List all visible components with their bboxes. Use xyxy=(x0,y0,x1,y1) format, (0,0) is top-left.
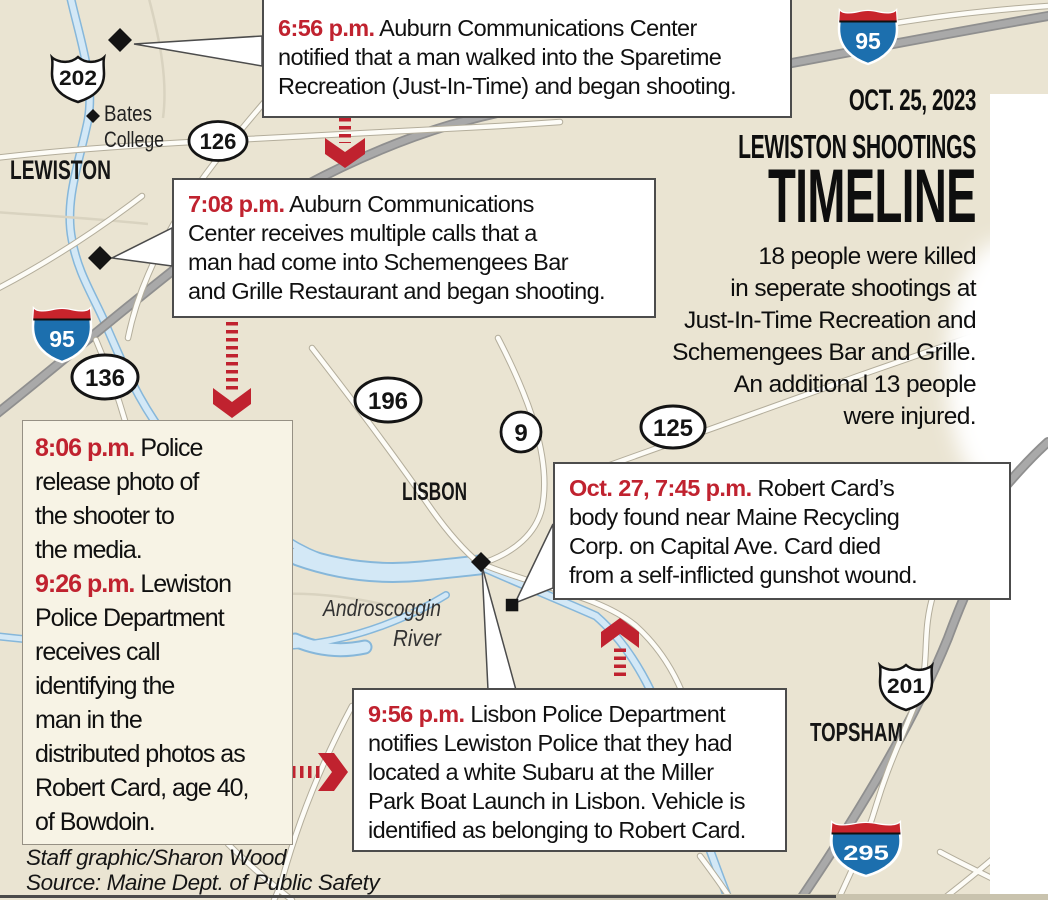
bates-college-label-2: College xyxy=(104,127,164,152)
rt-126-shield: 126 xyxy=(189,122,247,161)
svg-text:202: 202 xyxy=(59,67,97,90)
summary-line: Schemengees Bar and Grille. xyxy=(596,337,976,369)
event-time: 9:26 p.m. xyxy=(35,570,134,598)
lewiston-shootings-timeline-graphic: 202 201 126 136 196 9 xyxy=(0,0,1048,900)
summary-line: were injured. xyxy=(596,401,976,433)
callout-708pm: 7:08 p.m. Auburn Communications Center r… xyxy=(172,178,656,318)
summary-line: An additional 13 people xyxy=(596,369,976,401)
river-label-1: Androscoggin xyxy=(321,595,441,621)
callout-806pm-926pm: 8:06 p.m. Police release photo of the sh… xyxy=(22,420,293,845)
summary-line: 18 people were killed xyxy=(596,241,976,273)
marker-body-found-square xyxy=(506,599,519,612)
callout-956pm: 9:56 p.m. Lisbon Police Department notif… xyxy=(352,688,787,852)
city-label-lewiston: LEWISTON xyxy=(10,155,111,185)
svg-text:295: 295 xyxy=(843,841,889,865)
event-time: 7:08 p.m. xyxy=(188,191,284,217)
rt-136-shield: 136 xyxy=(72,355,138,399)
svg-text:136: 136 xyxy=(85,365,125,392)
svg-text:126: 126 xyxy=(200,129,237,154)
svg-text:95: 95 xyxy=(49,326,75,352)
credit-source: Source: Maine Dept. of Public Safety xyxy=(26,870,379,895)
event-time: 9:56 p.m. xyxy=(368,701,464,727)
credit-byline: Staff graphic/Sharon Wood xyxy=(26,845,379,870)
summary-line: in seperate shootings at xyxy=(596,273,976,305)
title-summary: 18 people were killedin seperate shootin… xyxy=(596,241,976,433)
svg-text:95: 95 xyxy=(855,28,881,54)
event-time: 8:06 p.m. xyxy=(35,434,134,462)
city-label-lisbon: LISBON xyxy=(402,478,467,506)
credits: Staff graphic/Sharon Wood Source: Maine … xyxy=(26,845,379,895)
rt-196-shield: 196 xyxy=(355,378,421,422)
summary-line: Just-In-Time Recreation and xyxy=(596,305,976,337)
callout-oct27-745pm: Oct. 27, 7:45 p.m. Robert Card’s body fo… xyxy=(553,462,1011,600)
city-label-topsham: TOPSHAM xyxy=(810,717,903,747)
page-title: TIMELINE xyxy=(748,166,976,228)
rt-9-shield: 9 xyxy=(501,412,541,452)
river-label-2: River xyxy=(393,625,442,651)
event-time: Oct. 27, 7:45 p.m. xyxy=(569,475,752,501)
bottom-frame-line xyxy=(0,895,836,898)
event-time: 6:56 p.m. xyxy=(278,15,374,41)
title-date: OCT. 25, 2023 xyxy=(718,86,976,116)
svg-text:9: 9 xyxy=(514,420,527,447)
bates-college-label-1: Bates xyxy=(104,101,152,126)
svg-text:201: 201 xyxy=(887,675,925,698)
svg-text:196: 196 xyxy=(368,388,408,415)
title-block: OCT. 25, 2023 LEWISTON SHOOTINGS TIMELIN… xyxy=(596,86,976,433)
